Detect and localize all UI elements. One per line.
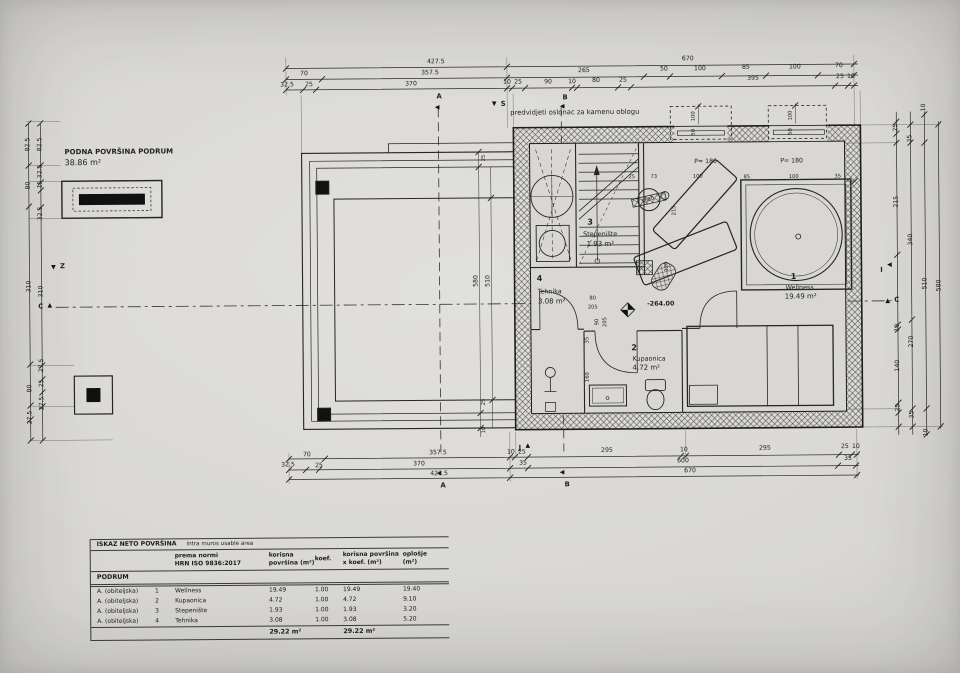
cell-area-koef: 4.72 [343, 596, 403, 603]
orientation-marker-s: S [501, 100, 506, 108]
dim-label: 85 [742, 65, 750, 71]
note-stone-cladding: predvidjeti oslonac za kamenu oblogu [510, 108, 639, 117]
dim-label: 90 [544, 79, 552, 85]
elevation-value: -264.00 [647, 299, 674, 307]
cell-koef: 1.00 [315, 617, 343, 624]
section-marker-a: A [436, 92, 441, 100]
section-marker-c-right: C [894, 296, 899, 304]
section-arrow-icon [887, 261, 892, 268]
dim-label: 10 [680, 447, 688, 453]
dim-label: 35 [907, 135, 913, 143]
dim-label: 10 [507, 450, 515, 456]
header-oplosje-line1: oplošje [403, 551, 427, 558]
dim-label: 35 [519, 461, 527, 467]
section-arrow-icon [47, 302, 52, 309]
room-4-area: 3.08 m² [538, 297, 565, 305]
section-arrow-icon [51, 264, 56, 271]
scanned-floor-plan-sheet: predvidjeti oslonac za kamenu oblogu POD… [0, 0, 960, 673]
cell-room-name: Tehnika [175, 617, 269, 624]
dim-label: 25 [315, 463, 323, 469]
room-3-area: 1.93 m² [587, 240, 614, 248]
header-norm: prema normi HRN ISO 9836:2017 [175, 552, 269, 568]
section-arrow-icon [560, 103, 565, 110]
dim-label: 25 [836, 74, 844, 80]
room-4-name: Tehnika [538, 287, 562, 295]
cell-room-name: Kupaonica [175, 597, 269, 604]
dim-label: 32.5 [38, 207, 44, 221]
header-oplosje-line2: (m²) [403, 559, 417, 566]
cell-area: 3.08 [269, 617, 315, 624]
header-oplosje: oplošje (m²) [403, 550, 449, 566]
dim-label: 10 [482, 427, 487, 434]
section-arrow-icon [885, 297, 890, 304]
dim-label: 270 [909, 336, 915, 348]
dim-label: 25 [482, 399, 487, 406]
header-area: korisna površina (m²) [269, 552, 315, 568]
table-header-row: prema normi HRN ISO 9836:2017 korisna po… [91, 548, 449, 572]
dim-label: 340 [908, 234, 914, 246]
table-subtitle: intra muros usable area [187, 541, 254, 548]
section-marker-c-left: C [38, 302, 43, 310]
floor-area-value: 38.86 m² [65, 158, 102, 168]
section-arrow-icon [560, 469, 565, 476]
room-4-number: 4 [537, 274, 543, 283]
floor-area-title: PODNA POVRŠINA PODRUM [65, 147, 174, 157]
dim-label: 140 [895, 360, 901, 372]
room-1-area: 19.49 m² [785, 292, 817, 300]
header-areak-line1: korisna površina [343, 551, 399, 558]
dim-label: 10 [568, 79, 576, 85]
dim-label: 295 [759, 446, 771, 452]
dim-label: 580 [936, 279, 942, 291]
door-1-width: 80 [589, 296, 596, 301]
dim-label: 25 [628, 175, 635, 180]
section-marker-z: Z [60, 262, 65, 270]
dim-label: 580 [473, 275, 479, 287]
cell-category: A. (obiteljska) [97, 588, 155, 595]
header-areak-line2: x koef. (m²) [343, 559, 382, 566]
dim-label: 10 [852, 444, 860, 450]
cell-number: 3 [155, 608, 175, 615]
dim-label: 370 [405, 81, 417, 87]
dim-label: 70 [835, 63, 843, 69]
total-spacer [175, 633, 269, 634]
cell-oplosje: 3.20 [403, 606, 449, 613]
table-total-row: 29.22 m² 29.22 m² [91, 624, 449, 641]
dim-label: 25 [305, 82, 313, 88]
drawing-sheet: predvidjeti oslonac za kamenu oblogu POD… [0, 0, 960, 673]
dim-label: 25 [514, 80, 522, 86]
section-arrow-icon [435, 104, 440, 111]
cell-category: A. (obiteljska) [97, 608, 155, 615]
dim-label: 35 [909, 411, 915, 419]
dim-label: 27.5 [39, 397, 45, 411]
area-table: ISKAZ NETO POVRŠINA intra muros usable a… [90, 536, 450, 641]
dim-label: 27.5 [27, 411, 33, 425]
dim-label: 295 [601, 448, 613, 454]
door-2-width: 90 [595, 319, 600, 326]
dim-label: 70 [300, 71, 308, 77]
section-marker-i: I [880, 266, 883, 274]
dim-label: 100 [789, 175, 799, 180]
dim-label: 10 [921, 104, 927, 112]
table-title: ISKAZ NETO POVRŠINA [97, 541, 177, 548]
window-parapet-label: P= 180 [694, 159, 717, 165]
cell-oplosje: 9.10 [403, 596, 449, 603]
cell-number: 1 [155, 588, 175, 595]
room-3-number: 3 [587, 218, 593, 227]
dim-label: 370 [413, 461, 425, 467]
dim-label: 10 [895, 324, 901, 332]
cell-area-koef: 19.49 [343, 586, 403, 593]
exterior-walls [513, 125, 862, 430]
dim-label: 10 [503, 80, 511, 86]
dim-label: 50 [660, 66, 668, 72]
cell-koef: 1.00 [315, 607, 343, 614]
cell-oplosje: 5.20 [403, 616, 449, 623]
section-marker-a-bottom: A [441, 481, 446, 489]
cell-oplosje: 19.40 [403, 586, 449, 593]
dim-label: 80 [592, 78, 600, 84]
dim-label: 35 [844, 456, 852, 462]
dim-label: 427.5 [430, 471, 448, 477]
dim-label: 32.5 [281, 462, 295, 468]
room-2-name: Kupaonica [633, 355, 666, 363]
cell-number: 2 [155, 598, 175, 605]
dim-label: 100 [789, 64, 801, 70]
cell-koef: 1.00 [315, 597, 343, 604]
cell-area: 4.72 [269, 597, 315, 604]
cell-number: 4 [155, 618, 175, 625]
dim-label: 25 [619, 78, 627, 84]
dim-label: 310 [38, 286, 44, 298]
dim-label: 100 [694, 66, 706, 72]
header-norm-line1: prema normi [175, 552, 218, 559]
dim-label: 70 [303, 452, 311, 458]
dim-label: 80 [27, 385, 33, 393]
dim-label: 310 [26, 281, 32, 293]
cell-koef: 1.00 [315, 587, 343, 594]
dim-label: 82.5 [25, 138, 31, 152]
dim-label: 35 [585, 337, 590, 344]
dim-label: 15 [38, 180, 44, 188]
dim-label: 25 [518, 450, 526, 456]
section-arrow-icon [526, 442, 531, 449]
room-2-area: 4.72 m² [633, 364, 660, 372]
dim-label: 215 [672, 205, 677, 215]
cell-area-koef: 3.08 [343, 616, 403, 623]
dim-label: 510 [922, 278, 928, 290]
dim-label: 10 [847, 74, 855, 80]
total-area-koef: 29.22 m² [343, 628, 403, 636]
dim-label: 265 [578, 68, 590, 74]
dim-label: 357.5 [429, 450, 447, 456]
cell-room-name: Stepenište [175, 607, 269, 614]
room-2-number: 2 [631, 343, 637, 352]
dim-label: 100 [693, 175, 703, 180]
dim-label: 357.5 [421, 70, 439, 76]
dim-label: 215 [894, 196, 900, 208]
room-3-name: Stepenište [583, 230, 617, 238]
cell-area: 19.49 [269, 587, 315, 594]
dim-label: 120 [665, 262, 670, 272]
cell-category: A. (obiteljska) [97, 598, 155, 605]
room-1-name: Wellness [786, 283, 814, 291]
section-marker-b-bottom: B [565, 480, 570, 488]
cell-area: 1.93 [269, 607, 315, 614]
section-marker-b: B [562, 93, 567, 101]
door-1-height: 205 [588, 305, 598, 310]
dim-label: 25 [893, 124, 899, 132]
header-koef: koef. [315, 555, 343, 563]
dim-label: 25 [895, 404, 901, 412]
dim-label: 670 [682, 56, 694, 62]
dim-label: 25 [482, 155, 487, 162]
cell-category: A. (obiteljska) [97, 618, 155, 625]
dim-label: 85 [743, 175, 750, 180]
dim-label: 25 [841, 444, 849, 450]
cell-room-name: Wellness [175, 587, 269, 594]
dim-label: 10 [924, 429, 930, 437]
window-well-width: 100 [789, 111, 794, 121]
dim-label: 427.5 [427, 59, 445, 65]
window-well-width: 100 [692, 111, 697, 121]
north-arrow-icon [492, 100, 497, 107]
room-1-number: 1 [791, 272, 797, 281]
dim-label: 510 [485, 275, 491, 287]
dim-label: 32.5 [280, 82, 294, 88]
window-parapet-label: P= 180 [780, 158, 803, 164]
dim-label: 73 [650, 175, 657, 180]
dim-label: 160 [586, 372, 591, 382]
dim-label: 670 [684, 468, 696, 474]
dim-label: 32.5 [38, 165, 44, 179]
dim-label: 82.5 [37, 138, 43, 152]
dim-label: 27.5 [39, 359, 45, 373]
cell-area-koef: 1.93 [343, 606, 403, 613]
dim-label: 80 [26, 182, 32, 190]
dim-label: 395 [747, 76, 759, 82]
header-area-line1: korisna [269, 552, 294, 559]
header-area-line2: površina (m²) [269, 559, 315, 566]
dim-label: 600 [677, 458, 689, 464]
window-well-height: 50 [789, 128, 794, 135]
dim-label: 35 [834, 175, 841, 180]
header-areak: korisna površina x koef. (m²) [343, 551, 403, 567]
floor-area-diagram [62, 180, 164, 414]
window-well-height: 50 [692, 129, 697, 136]
dim-label: 25 [39, 379, 45, 387]
total-area: 29.22 m² [269, 629, 315, 636]
header-norm-line2: HRN ISO 9836:2017 [175, 560, 241, 568]
door-2-height: 205 [603, 317, 608, 327]
